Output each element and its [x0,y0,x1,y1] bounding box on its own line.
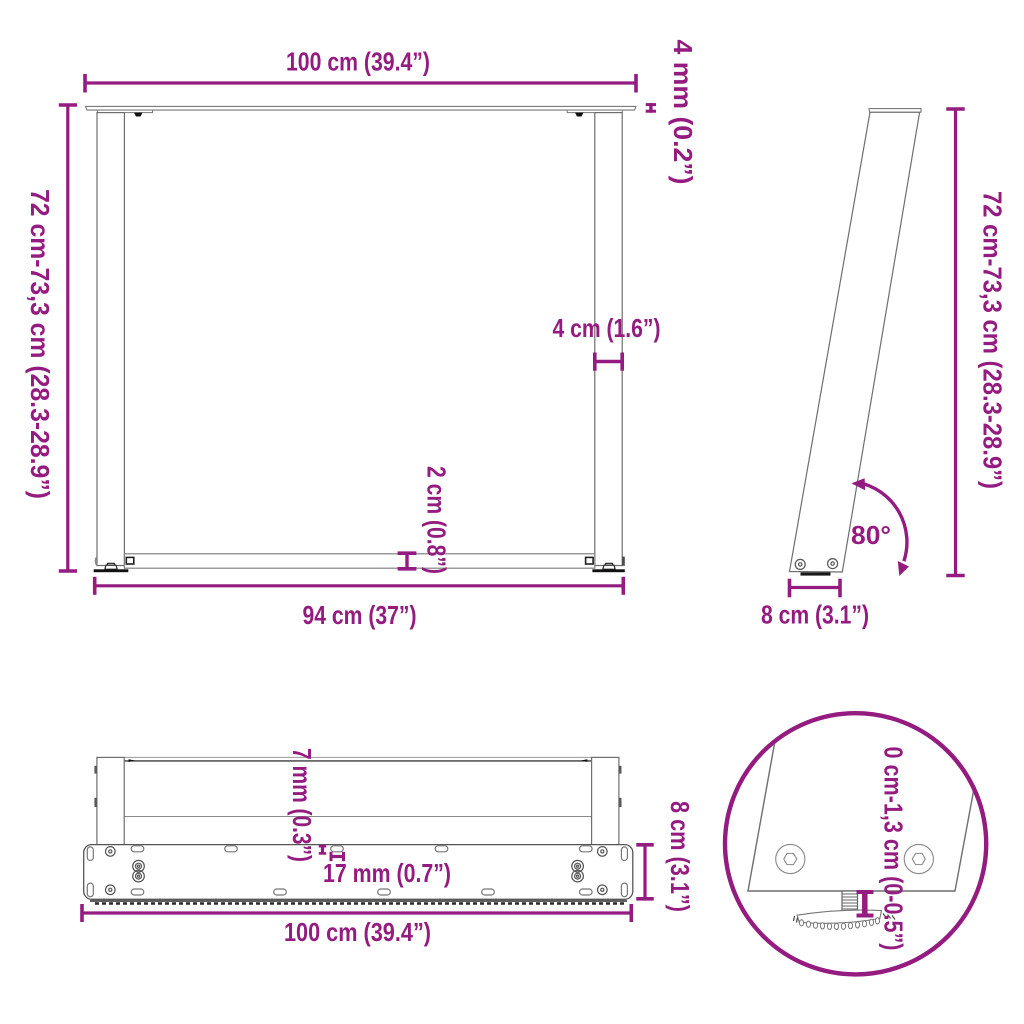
svg-text:4 cm (1.6”): 4 cm (1.6”) [553,313,661,343]
svg-text:72 cm-73,3 cm (28.3-28.9”): 72 cm-73,3 cm (28.3-28.9”) [978,191,1008,489]
svg-text:8 cm (3.1”): 8 cm (3.1”) [761,600,869,630]
svg-text:0 cm-1,3 cm (0-0.5”): 0 cm-1,3 cm (0-0.5”) [879,747,909,951]
svg-text:17 mm (0.7”): 17 mm (0.7”) [323,858,451,888]
svg-text:72 cm-73,3 cm (28.3-28.9”): 72 cm-73,3 cm (28.3-28.9”) [25,189,55,499]
svg-text:100 cm (39.4”): 100 cm (39.4”) [284,917,431,947]
svg-text:7 mm (0.3”): 7 mm (0.3”) [287,748,317,862]
svg-text:80°: 80° [851,520,891,550]
svg-text:8 cm (3.1”): 8 cm (3.1”) [665,801,695,912]
svg-text:94 cm (37”): 94 cm (37”) [303,600,417,630]
svg-text:4 mm (0.2”): 4 mm (0.2”) [668,40,698,185]
svg-text:100 cm (39.4”): 100 cm (39.4”) [286,47,430,77]
svg-text:2 cm (0.8”): 2 cm (0.8”) [422,466,452,574]
